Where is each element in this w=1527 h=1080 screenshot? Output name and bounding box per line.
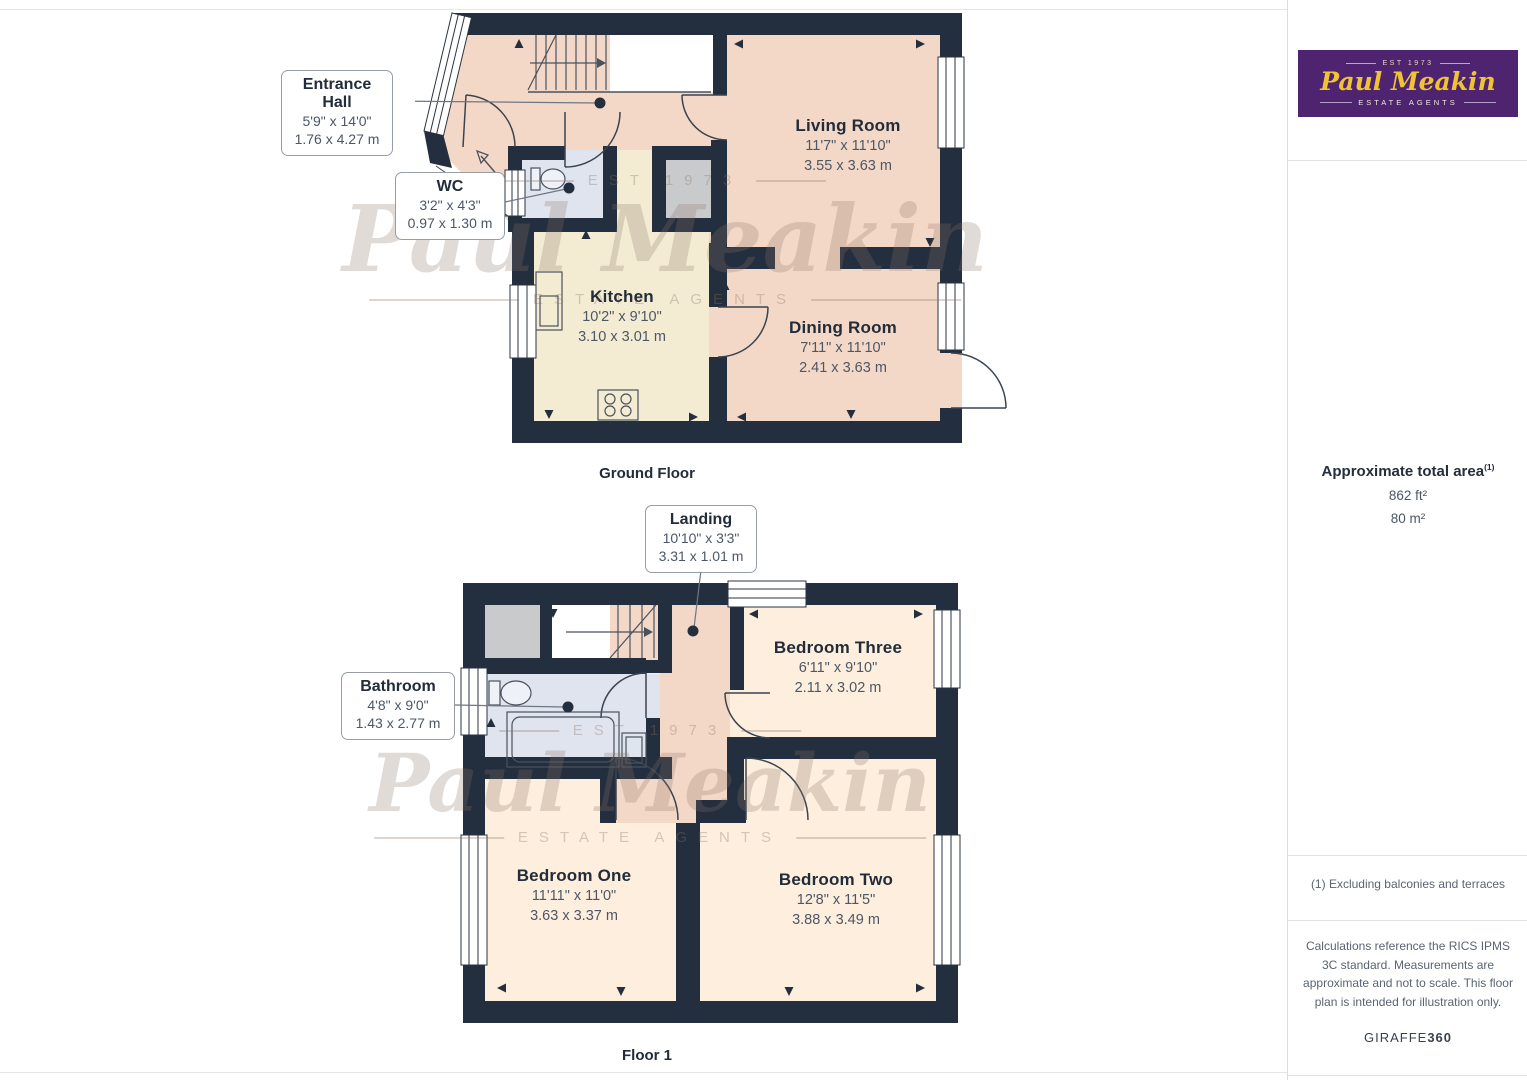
total-area-title: Approximate total area(1): [1288, 462, 1527, 480]
room-dims-imperial: 10'10" x 3'3": [652, 529, 750, 547]
room-name: Bedroom Three: [774, 638, 902, 658]
logo-est-line: EST 1973: [1346, 60, 1469, 67]
room-dims-metric: 3.63 x 3.37 m: [517, 907, 632, 926]
sidebar-divider: [1288, 160, 1527, 161]
sidebar-divider: [1288, 855, 1527, 856]
disclaimer-text: Calculations reference the RICS IPMS 3C …: [1302, 937, 1514, 1011]
room-name: Living Room: [795, 116, 900, 136]
room-dims-metric: 3.88 x 3.49 m: [779, 911, 893, 930]
toilet-icon: [531, 168, 565, 190]
room-name: Landing: [652, 511, 750, 529]
sidebar-divider: [1288, 1075, 1527, 1076]
logo-line: [1320, 102, 1352, 103]
floor-one-plan: [450, 545, 1025, 1035]
room-label-bedroom-one: Bedroom One 11'11" x 11'0" 3.63 x 3.37 m: [517, 866, 632, 925]
logo-tagline: ESTATE AGENTS: [1320, 98, 1496, 107]
giraffe360-brand: GIRAFFE360: [1288, 1030, 1527, 1045]
room-dims-imperial: 11'11" x 11'0": [517, 887, 632, 906]
room-dims-metric: 0.97 x 1.30 m: [402, 214, 498, 232]
logo-dash: [1346, 63, 1376, 64]
total-area-metric: 80 m²: [1288, 511, 1527, 526]
room-dims-imperial: 12'8" x 11'5": [779, 891, 893, 910]
room-label-bedroom-three: Bedroom Three 6'11" x 9'10" 2.11 x 3.02 …: [774, 638, 902, 697]
room-dims-imperial: 3'2" x 4'3": [402, 196, 498, 214]
room-dims-metric: 3.31 x 1.01 m: [652, 547, 750, 565]
total-area-block: Approximate total area(1) 862 ft² 80 m²: [1288, 462, 1527, 526]
room-dims-metric: 2.41 x 3.63 m: [789, 359, 897, 378]
room-dims-imperial: 5'9" x 14'0": [288, 112, 386, 130]
room-dims-imperial: 6'11" x 9'10": [774, 659, 902, 678]
room-name: Bathroom: [348, 678, 448, 696]
logo-dash: [1440, 63, 1470, 64]
callout-bathroom: Bathroom 4'8" x 9'0" 1.43 x 2.77 m: [341, 672, 455, 740]
footnote-mark: (1): [1484, 462, 1494, 472]
room-dims-imperial: 11'7" x 11'10": [795, 137, 900, 156]
logo-name-text: Paul Meakin: [1320, 69, 1495, 95]
room-name: Dining Room: [789, 318, 897, 338]
callout-entrance-hall: Entrance Hall 5'9" x 14'0" 1.76 x 4.27 m: [281, 70, 393, 156]
footnote-text: (1) Excluding balconies and terraces: [1288, 877, 1527, 891]
sidebar-divider: [1288, 920, 1527, 921]
room-dims-metric: 3.10 x 3.01 m: [578, 328, 666, 347]
logo-line: [1464, 102, 1496, 103]
room-dims-imperial: 4'8" x 9'0": [348, 696, 448, 714]
room-label-dining-room: Dining Room 7'11" x 11'10" 2.41 x 3.63 m: [789, 318, 897, 377]
room-label-bedroom-two: Bedroom Two 12'8" x 11'5" 3.88 x 3.49 m: [779, 870, 893, 929]
floorplan-page: EST 1973 Paul Meakin ESTATE AGENTS EST 1…: [0, 0, 1527, 1080]
room-name: Bedroom One: [517, 866, 632, 886]
brand-name: GIRAFFE: [1364, 1030, 1427, 1045]
ground-floor-caption: Ground Floor: [599, 465, 695, 482]
logo-est-text: EST 1973: [1382, 60, 1433, 67]
room-name: Bedroom Two: [779, 870, 893, 890]
paul-meakin-logo: EST 1973 Paul Meakin ESTATE AGENTS: [1298, 50, 1518, 117]
room-name: Kitchen: [578, 287, 666, 307]
room-name: WC: [402, 178, 498, 196]
callout-wc: WC 3'2" x 4'3" 0.97 x 1.30 m: [395, 172, 505, 240]
callout-landing: Landing 10'10" x 3'3" 3.31 x 1.01 m: [645, 505, 757, 573]
room-dims-imperial: 7'11" x 11'10": [789, 339, 897, 358]
plan-area: EST 1973 Paul Meakin ESTATE AGENTS EST 1…: [0, 0, 1287, 1080]
room-dims-metric: 3.55 x 3.63 m: [795, 157, 900, 176]
toilet-icon: [489, 681, 531, 705]
sidebar: EST 1973 Paul Meakin ESTATE AGENTS Appro…: [1287, 0, 1527, 1080]
room-dims-imperial: 10'2" x 9'10": [578, 308, 666, 327]
room-dims-metric: 1.76 x 4.27 m: [288, 130, 386, 148]
room-label-kitchen: Kitchen 10'2" x 9'10" 3.10 x 3.01 m: [578, 287, 666, 346]
room-label-living-room: Living Room 11'7" x 11'10" 3.55 x 3.63 m: [795, 116, 900, 175]
room-name: Entrance Hall: [288, 76, 386, 112]
room-dims-metric: 1.43 x 2.77 m: [348, 714, 448, 732]
room-dims-metric: 2.11 x 3.02 m: [774, 679, 902, 698]
total-area-imperial: 862 ft²: [1288, 488, 1527, 503]
brand-suffix: 360: [1427, 1030, 1452, 1045]
floor-one-caption: Floor 1: [622, 1047, 672, 1064]
ground-floor-plan: [415, 5, 1025, 455]
logo-tagline-text: ESTATE AGENTS: [1358, 98, 1458, 107]
